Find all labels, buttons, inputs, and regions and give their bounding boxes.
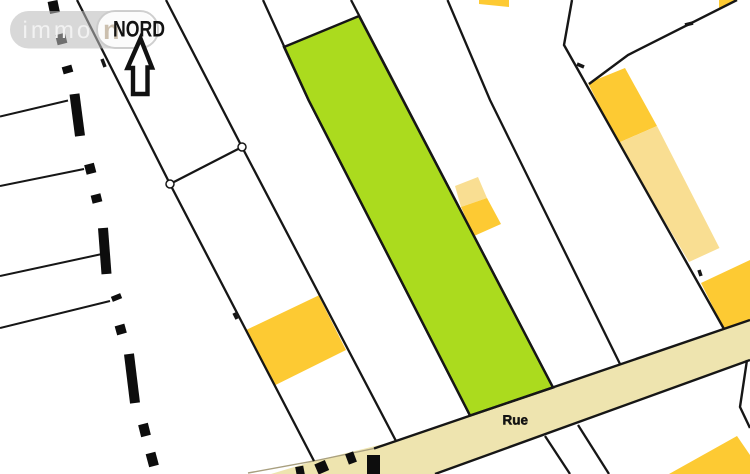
svg-text:immo: immo [22,17,93,44]
svg-text:Rue: Rue [502,413,528,428]
